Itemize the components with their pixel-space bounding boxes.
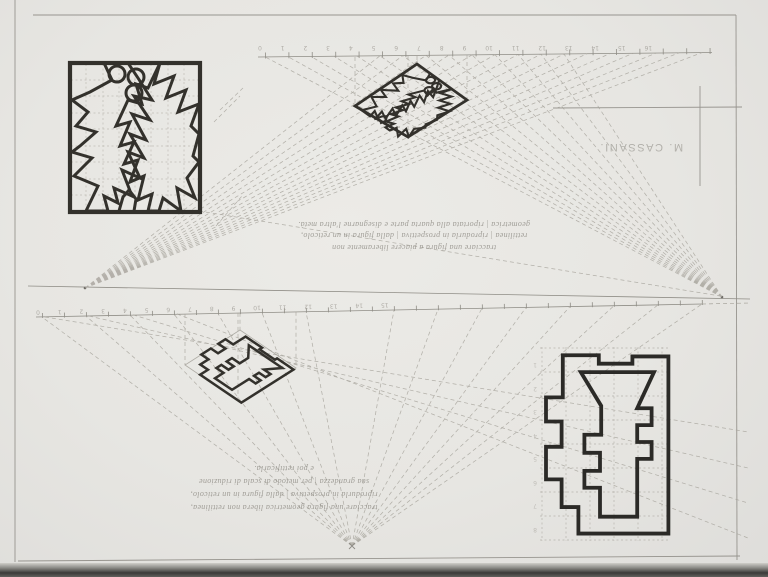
- border-right: [736, 15, 737, 560]
- top-exercise: [28, 51, 750, 299]
- caption-line: e poi rettificarla.: [183, 462, 385, 475]
- bottom-ruler-extension: [702, 303, 750, 304]
- top-caption: tracciare una figura a piacere liberamen…: [291, 211, 537, 253]
- castle-perspective-projection: [185, 330, 296, 403]
- signature: M. CASSANI.: [580, 131, 702, 153]
- caption-line: tracciare una figura a piacere liberamen…: [291, 242, 537, 254]
- caption-line: sua grandezza | per metodo di scala di r…: [183, 475, 385, 488]
- castle-figure: [546, 355, 668, 533]
- caption-line: rettilinea | riprodurla in prospettiva |…: [291, 230, 537, 242]
- caption-line: riprodurla in prospettiva | dalla figura…: [183, 488, 385, 501]
- caption-line: tracciare una figura geometrica libera n…: [183, 501, 385, 514]
- star-grid-figure: [70, 63, 200, 212]
- star-figure-projected: [356, 65, 466, 142]
- titleblock-hline: [553, 107, 742, 108]
- top-ruler-numbers: 16 15 14 13 12 11 10 9 8 7 6 5 4 3 2 1 0: [258, 42, 678, 51]
- bottom-exercise: [36, 303, 750, 550]
- caption-line: geometrica | riportata alla quarta parte…: [291, 219, 537, 231]
- paper-edge-shadow: [0, 563, 768, 577]
- castle-grid-figure: [540, 347, 670, 541]
- castle-grid-row-numbers: 8 7 6 5 4 3 2 1: [527, 351, 537, 541]
- scanned-sheet: tracciare una figura a piacere liberamen…: [0, 0, 768, 577]
- border-bottom: [18, 556, 740, 561]
- top-ruler-line: [258, 53, 712, 58]
- top-construction-fan: [85, 53, 722, 297]
- top-horizon-line: [28, 286, 750, 299]
- star-figure: [72, 63, 199, 211]
- bottom-caption: tracciare una figura geometrica libera n…: [183, 456, 385, 514]
